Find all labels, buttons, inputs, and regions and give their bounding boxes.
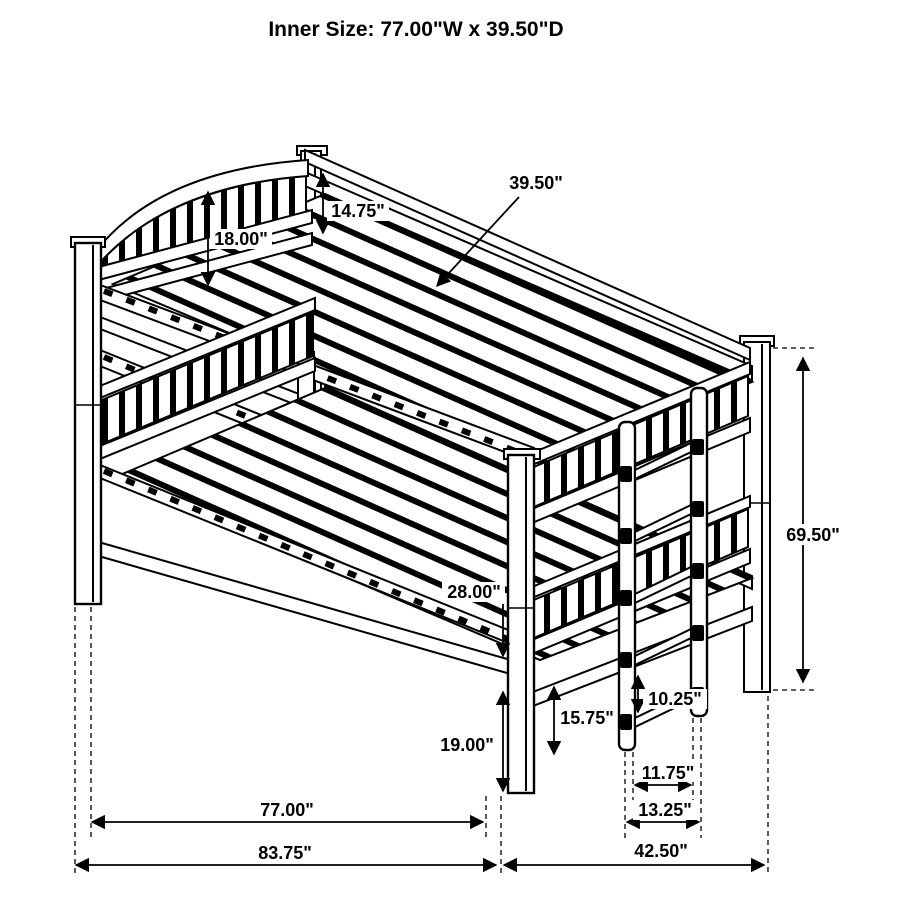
dim-label-ladder-rung-spacing: 10.25" — [648, 689, 702, 709]
dim-label-headboard-height: 18.00" — [214, 229, 268, 249]
dim-ladder-outer-width: 13.25" — [627, 800, 699, 822]
dim-label-inner-depth: 39.50" — [509, 173, 563, 193]
dim-ladder-lower-section: 15.75" — [554, 687, 617, 754]
dim-ladder-inner-width: 11.75" — [635, 762, 700, 785]
near-right-post — [504, 449, 540, 793]
dim-label-overall-height: 69.50" — [786, 525, 840, 545]
dim-overall-depth: 42.50" — [504, 841, 764, 865]
dim-label-ladder-inner-width: 11.75" — [642, 763, 695, 783]
ladder-right-rail — [691, 388, 707, 716]
dim-label-under-bed-clearance: 19.00" — [440, 735, 494, 755]
dim-label-inner-width: 77.00" — [260, 800, 314, 820]
dim-inner-width: 77.00" — [92, 800, 483, 822]
dim-label-ladder-outer-width: 13.25" — [638, 800, 692, 820]
dim-label-bunk-spacing: 28.00" — [447, 582, 501, 602]
dim-label-ladder-lower-section: 15.75" — [560, 708, 614, 728]
diagram-title: Inner Size: 77.00"W x 39.50"D — [268, 18, 563, 41]
bunk-bed-dimension-diagram: 18.00" 14.75" 39.50" 69.50" 28.00" 19.00… — [0, 0, 900, 900]
near-left-post — [71, 237, 105, 604]
dim-under-bed-clearance: 19.00" — [435, 692, 503, 791]
dim-overall-height: 69.50" — [779, 358, 847, 682]
diagram-canvas: 18.00" 14.75" 39.50" 69.50" 28.00" 19.00… — [0, 0, 900, 900]
dim-overall-width: 83.75" — [76, 843, 496, 865]
dim-label-overall-depth: 42.50" — [634, 841, 688, 861]
dim-label-overall-width: 83.75" — [258, 843, 312, 863]
dim-label-guardrail-height: 14.75" — [331, 201, 385, 221]
